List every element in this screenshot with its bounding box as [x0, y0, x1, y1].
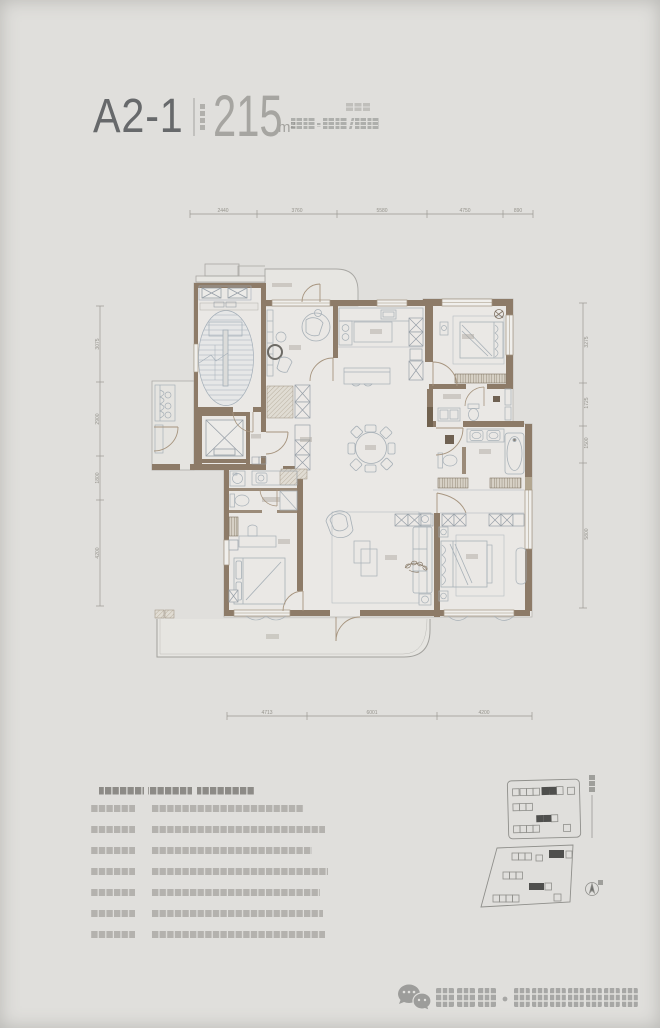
- svg-text:215: 215: [213, 83, 283, 148]
- svg-text:5580: 5580: [376, 208, 387, 214]
- svg-text:2900: 2900: [95, 413, 101, 424]
- svg-text:3760: 3760: [291, 208, 302, 214]
- svg-text:2440: 2440: [217, 208, 228, 214]
- svg-text:1800: 1800: [95, 472, 101, 483]
- svg-text:3275: 3275: [584, 336, 590, 347]
- svg-text:890: 890: [514, 208, 523, 214]
- svg-text:3075: 3075: [95, 338, 101, 349]
- svg-text:A2-1: A2-1: [93, 89, 184, 143]
- svg-text:1500: 1500: [584, 437, 590, 448]
- svg-text:4200: 4200: [95, 547, 101, 558]
- svg-text:5800: 5800: [584, 528, 590, 539]
- svg-text:1725: 1725: [584, 397, 590, 408]
- svg-text:4200: 4200: [478, 710, 489, 716]
- svg-text:4750: 4750: [459, 208, 470, 214]
- svg-text:6001: 6001: [366, 710, 377, 716]
- svg-text:4713: 4713: [261, 710, 272, 716]
